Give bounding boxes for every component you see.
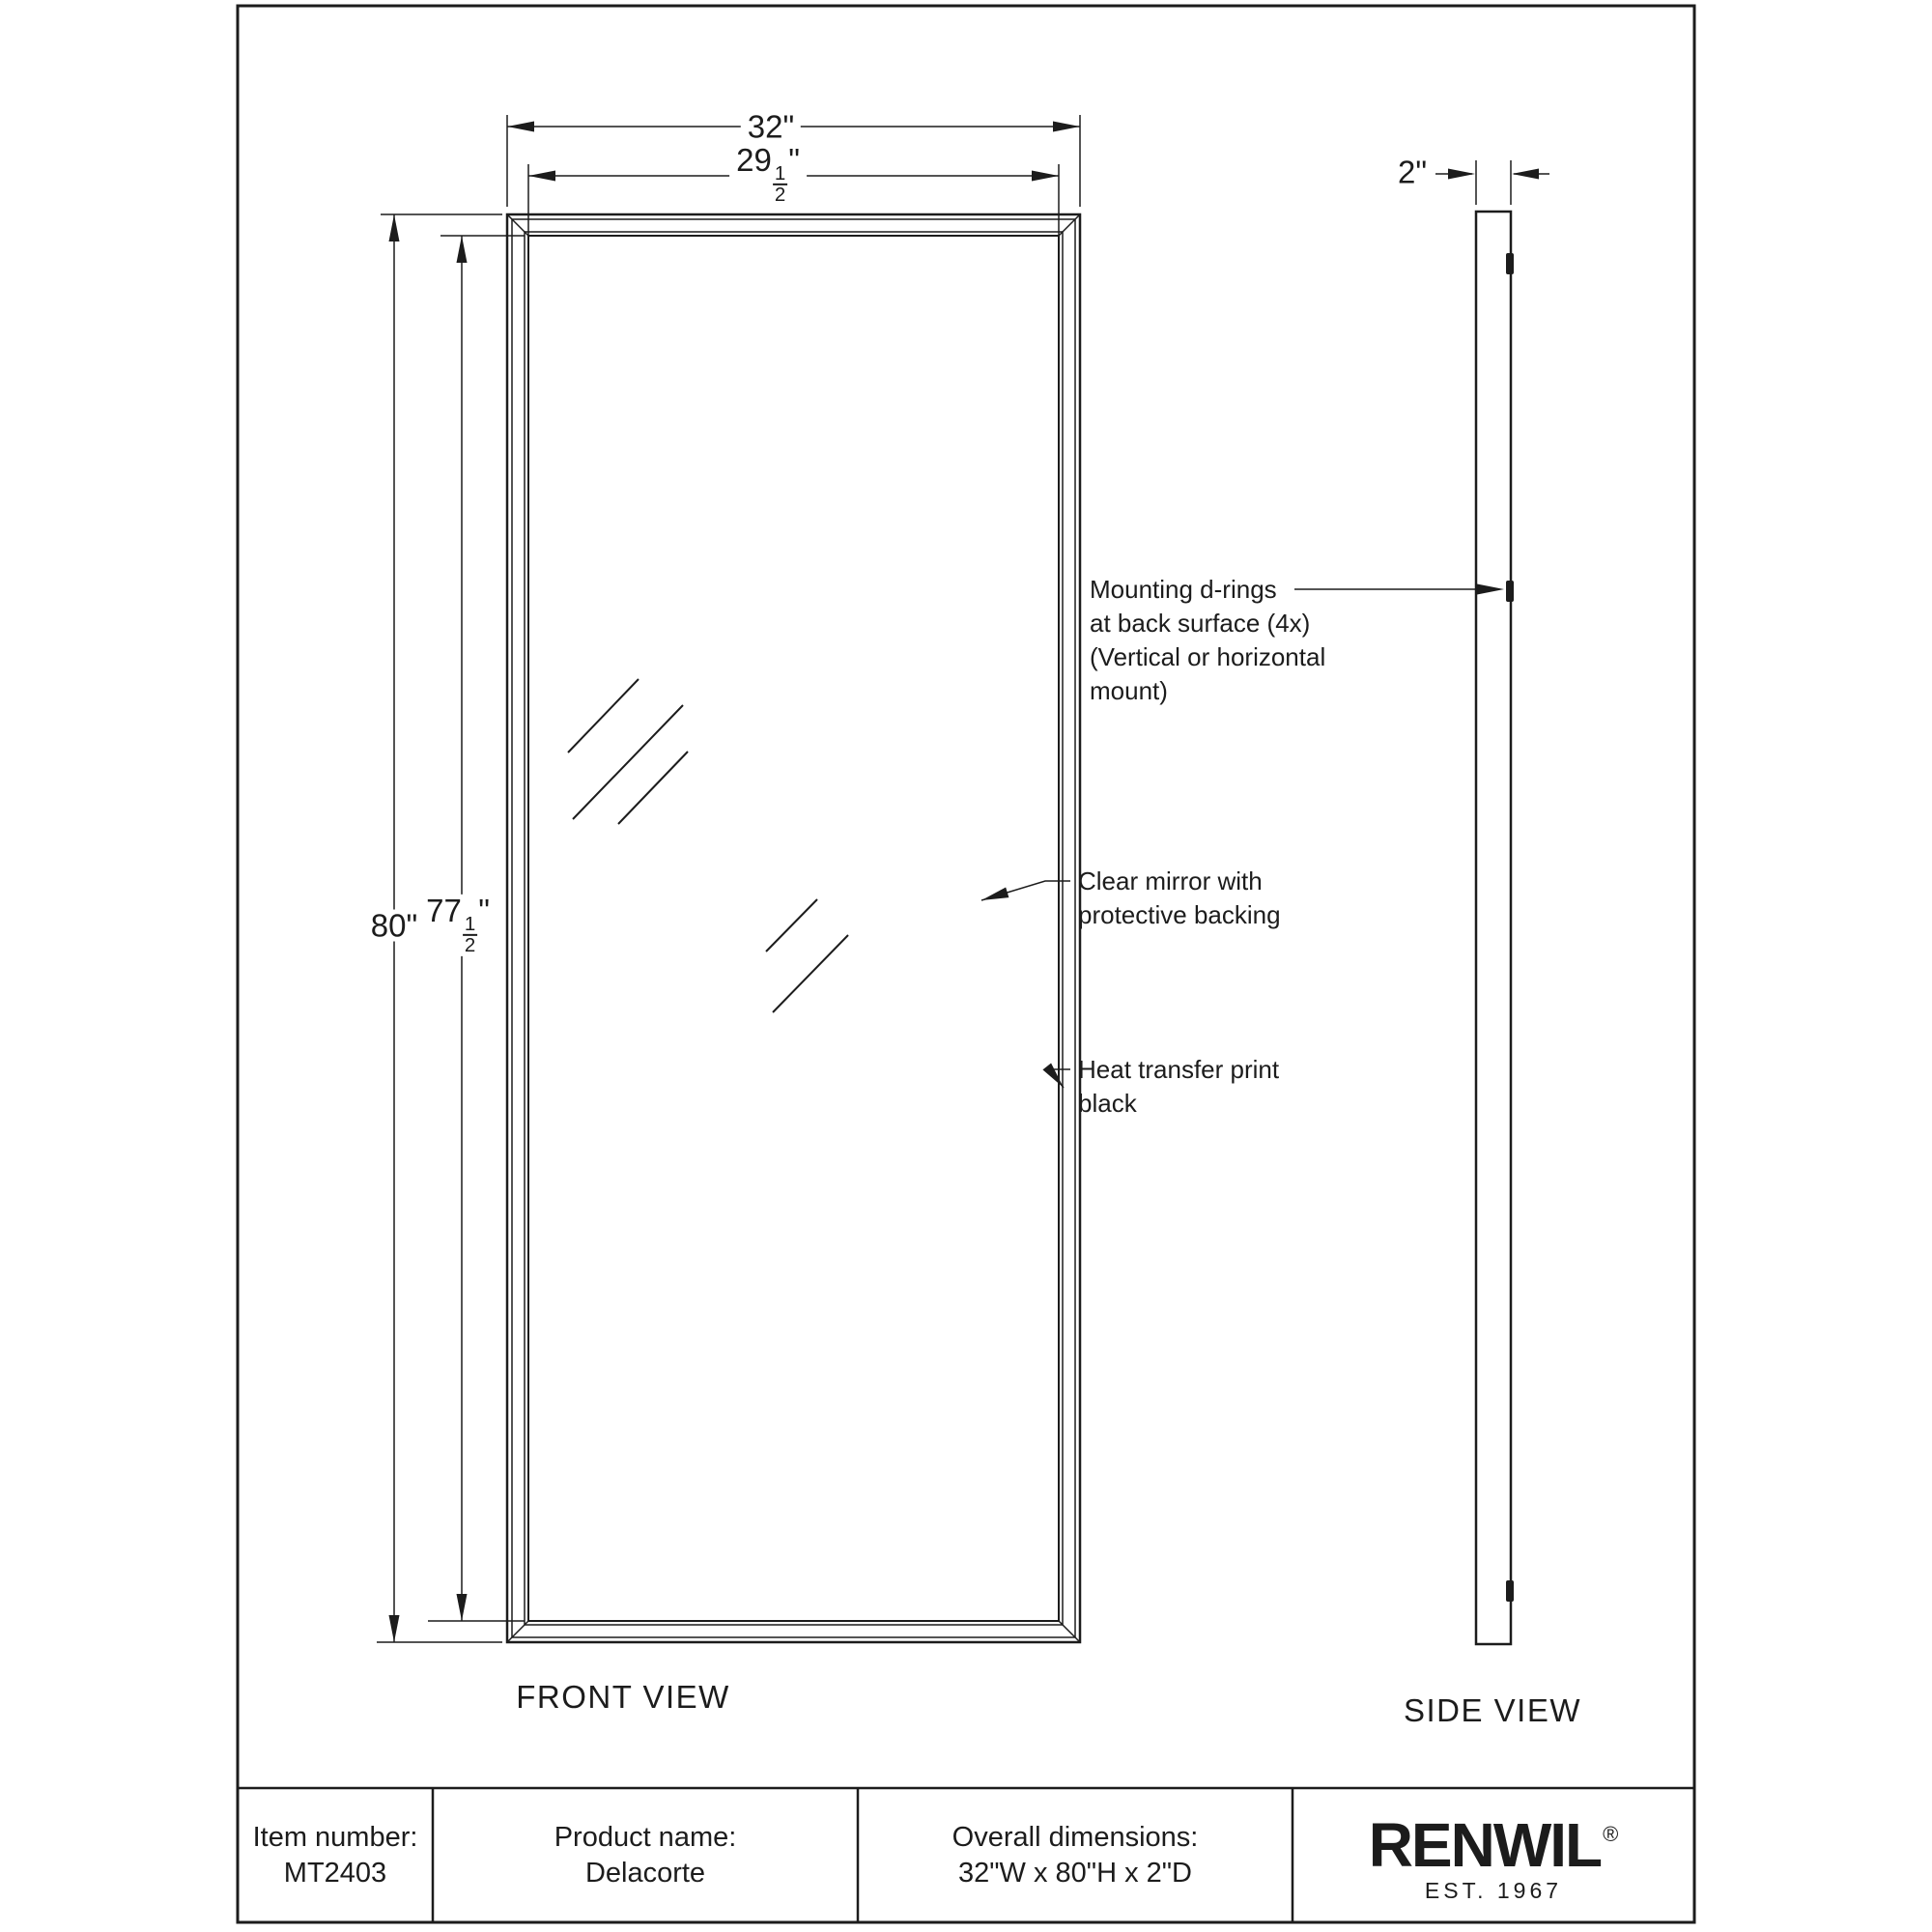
title-block-brand-cell: RENWIL® EST. 1967 xyxy=(1293,1788,1694,1922)
product-name-label: Product name: xyxy=(554,1820,737,1856)
annotation-line: at back surface (4x) xyxy=(1090,607,1325,640)
d-ring-middle xyxy=(1506,581,1514,602)
product-name-value: Delacorte xyxy=(585,1856,705,1891)
dim-height-inner-text: 7712" xyxy=(419,895,497,956)
front-view-label: FRONT VIEW xyxy=(516,1679,730,1716)
d-ring-bottom xyxy=(1506,1580,1514,1602)
d-ring-top xyxy=(1506,253,1514,274)
annotation-line: Clear mirror with xyxy=(1078,865,1281,898)
item-number-label: Item number: xyxy=(253,1820,418,1856)
annotation-line: (Vertical or horizontal xyxy=(1090,640,1325,674)
annotation-line: protective backing xyxy=(1078,898,1281,932)
fraction: 12 xyxy=(463,914,477,956)
fraction-numerator: 1 xyxy=(463,914,477,936)
annotation-mounting-drings: Mounting d-rings at back surface (4x) (V… xyxy=(1090,573,1325,708)
dim-unit: " xyxy=(478,893,490,928)
dimension-depth xyxy=(1435,160,1549,205)
dim-depth-text: 2" xyxy=(1391,156,1434,188)
brand-name-text: RENWIL xyxy=(1369,1810,1601,1880)
annotation-clear-mirror: Clear mirror with protective backing xyxy=(1078,865,1281,932)
overall-dimensions-value: 32"W x 80"H x 2"D xyxy=(958,1856,1192,1891)
dim-width-outer-text: 32" xyxy=(741,111,801,143)
fraction-denominator: 2 xyxy=(773,185,787,206)
technical-drawing-linework xyxy=(0,0,1932,1932)
fraction-numerator: 1 xyxy=(773,163,787,185)
fraction-denominator: 2 xyxy=(463,936,477,956)
registered-trademark-icon: ® xyxy=(1603,1822,1618,1846)
side-view-label: SIDE VIEW xyxy=(1404,1692,1581,1729)
title-block-dimensions-cell: Overall dimensions: 32"W x 80"H x 2"D xyxy=(858,1788,1293,1922)
overall-dimensions-label: Overall dimensions: xyxy=(952,1820,1199,1856)
annotation-line: Mounting d-rings xyxy=(1090,573,1325,607)
dim-whole: 29 xyxy=(736,142,772,178)
annotation-line: Heat transfer print xyxy=(1078,1053,1279,1087)
mirror-glint-lines xyxy=(568,679,848,1012)
brand-established-text: EST. 1967 xyxy=(1425,1878,1562,1904)
spec-sheet-page: 32" 2912" 80" 7712" 2" Mounting d-rings … xyxy=(0,0,1932,1932)
dim-height-outer-text: 80" xyxy=(364,910,424,942)
fraction: 12 xyxy=(773,163,787,206)
dim-whole: 77 xyxy=(426,893,462,928)
title-block-item-cell: Item number: MT2403 xyxy=(238,1788,433,1922)
brand-logo: RENWIL® xyxy=(1369,1807,1619,1872)
arrowheads xyxy=(389,122,1540,1643)
dim-width-inner-text: 2912" xyxy=(729,144,807,206)
title-block-product-cell: Product name: Delacorte xyxy=(433,1788,858,1922)
front-view-frame xyxy=(507,214,1080,1642)
dim-unit: " xyxy=(788,142,800,178)
annotation-heat-transfer: Heat transfer print black xyxy=(1078,1053,1279,1121)
annotation-line: mount) xyxy=(1090,674,1325,708)
annotation-line: black xyxy=(1078,1087,1279,1121)
item-number-value: MT2403 xyxy=(284,1856,386,1891)
side-view-profile xyxy=(1476,212,1514,1644)
